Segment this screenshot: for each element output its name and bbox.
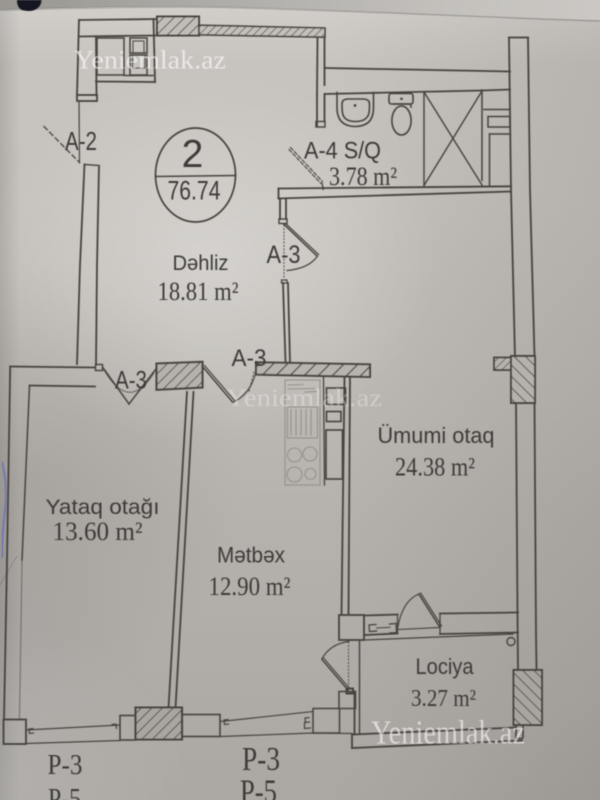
- svg-text:A-3: A-3: [115, 367, 147, 395]
- svg-text:A-2: A-2: [65, 126, 97, 156]
- svg-text:Ümumi otaq: Ümumi otaq: [378, 423, 495, 448]
- svg-text:Yeniemlak.az: Yeniemlak.az: [74, 46, 226, 75]
- svg-text:Yeniemlak.az: Yeniemlak.az: [226, 385, 382, 412]
- svg-text:13.60 m²: 13.60 m²: [53, 517, 143, 546]
- svg-text:2: 2: [182, 133, 204, 176]
- svg-text:P-5: P-5: [48, 783, 81, 800]
- svg-text:24.38 m²: 24.38 m²: [395, 453, 475, 482]
- svg-text:A-4 S/Q: A-4 S/Q: [304, 138, 381, 165]
- svg-text:Dəhliz: Dəhliz: [173, 251, 229, 275]
- svg-text:3.27 m²: 3.27 m²: [411, 686, 476, 712]
- svg-text:76.74: 76.74: [168, 176, 221, 206]
- svg-text:3.78 m²: 3.78 m²: [329, 162, 397, 191]
- svg-text:Mətbəx: Mətbəx: [217, 543, 285, 568]
- svg-text:Yataq otağı: Yataq otağı: [46, 495, 160, 519]
- svg-text:A-3: A-3: [232, 345, 267, 372]
- svg-text:P-3: P-3: [242, 741, 280, 778]
- svg-text:18.81 m²: 18.81 m²: [158, 277, 239, 306]
- svg-text:A-3: A-3: [267, 241, 301, 269]
- svg-text:P-5: P-5: [240, 774, 277, 800]
- svg-text:Yeniemlak.az: Yeniemlak.az: [371, 715, 525, 752]
- svg-text:Lociya: Lociya: [416, 654, 475, 679]
- svg-text:P-3: P-3: [48, 750, 83, 781]
- svg-text:12.90 m²: 12.90 m²: [209, 572, 291, 601]
